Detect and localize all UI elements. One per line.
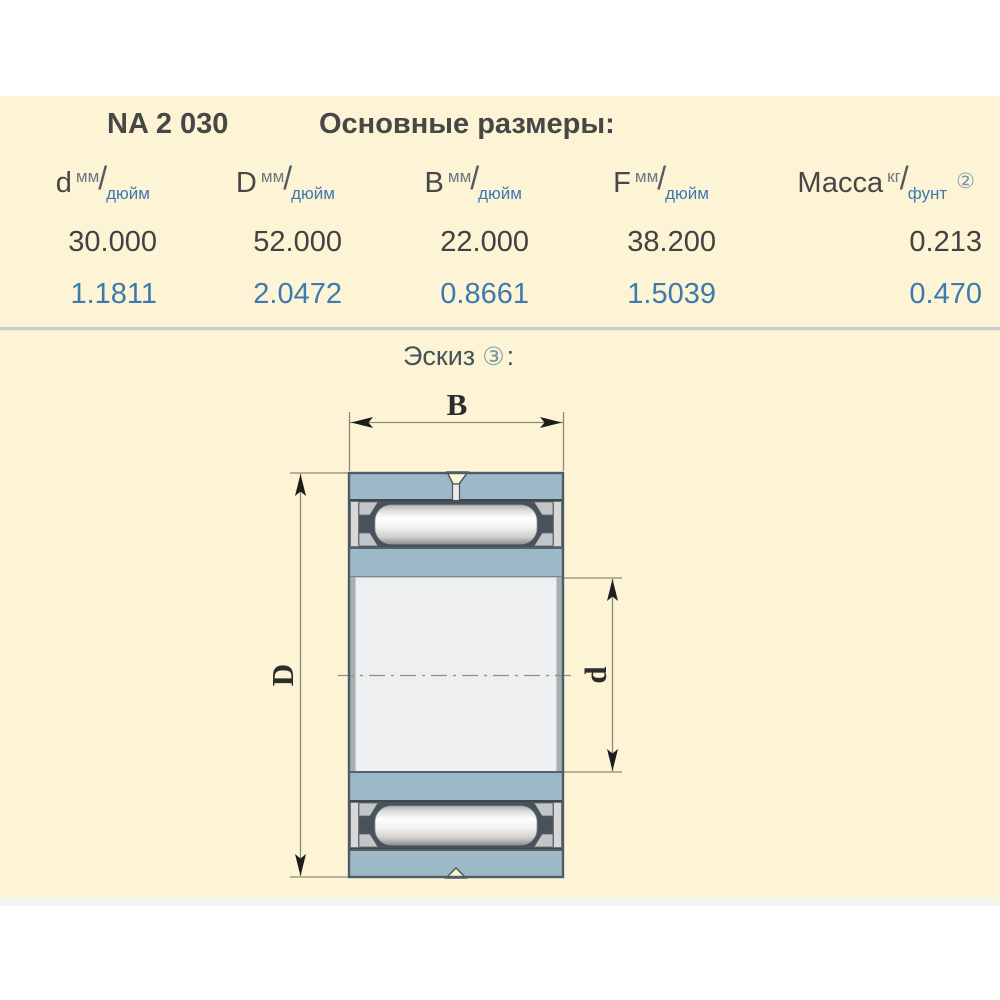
unit-mm: мм bbox=[261, 167, 284, 186]
column-header-F: Fмм/дюйм bbox=[532, 163, 719, 219]
unit-pound: фунт bbox=[908, 184, 947, 203]
roller-row-top bbox=[349, 500, 563, 548]
unit-kg: кг bbox=[887, 167, 901, 186]
value-F-inch: 1.5039 bbox=[532, 278, 719, 311]
dimension-label-B: B bbox=[442, 388, 472, 422]
column-symbol: D bbox=[236, 167, 257, 199]
unit-mm: мм bbox=[76, 167, 99, 186]
bottom-strip bbox=[0, 898, 1000, 906]
inner-ring-top bbox=[349, 548, 563, 577]
value-B-mm: 22.000 bbox=[345, 226, 532, 259]
column-symbol: F bbox=[613, 167, 631, 199]
unit-mm: мм bbox=[448, 167, 471, 186]
inner-ring-bottom bbox=[349, 772, 563, 801]
bore bbox=[349, 577, 563, 772]
catalog-page: NA 2 030 Основные размеры: dмм/дюйм Dмм/… bbox=[0, 0, 1000, 1000]
bore-edge-right bbox=[557, 578, 563, 772]
column-header-B: Bмм/дюйм bbox=[345, 163, 532, 219]
value-d-inch: 1.1811 bbox=[0, 278, 160, 311]
table-header-row: dмм/дюйм Dмм/дюйм Bмм/дюйм Fмм/дюйм Масс… bbox=[0, 163, 985, 219]
value-B-inch: 0.8661 bbox=[345, 278, 532, 311]
value-D-mm: 52.000 bbox=[160, 226, 345, 259]
unit-inch: дюйм bbox=[106, 184, 150, 203]
dimension-label-d: d bbox=[576, 655, 616, 695]
value-mass-kg: 0.213 bbox=[719, 226, 985, 259]
bearing-cross-section-drawing bbox=[0, 385, 1000, 890]
part-number: NA 2 030 bbox=[107, 108, 228, 141]
section-title: Основные размеры: bbox=[319, 108, 615, 141]
table-row-inch: 1.1811 2.0472 0.8661 1.5039 0.470 bbox=[0, 278, 985, 311]
footnote-mark-2-icon: ② bbox=[956, 170, 975, 193]
sketch-label: Эскиз bbox=[403, 341, 475, 371]
dimension-label-D: D bbox=[263, 655, 303, 695]
column-symbol: d bbox=[56, 167, 72, 199]
footnote-mark-3-icon: ③ bbox=[482, 343, 504, 371]
column-header-mass: Массакг/фунт② bbox=[719, 163, 985, 219]
column-symbol: B bbox=[425, 167, 444, 199]
unit-inch: дюйм bbox=[478, 184, 522, 203]
bore-edge-left bbox=[350, 578, 356, 772]
value-mass-lb: 0.470 bbox=[719, 278, 985, 311]
column-header-d: dмм/дюйм bbox=[0, 163, 160, 219]
unit-inch: дюйм bbox=[665, 184, 709, 203]
value-D-inch: 2.0472 bbox=[160, 278, 345, 311]
lubrication-slot bbox=[453, 484, 460, 501]
table-row-mm: 30.000 52.000 22.000 38.200 0.213 bbox=[0, 226, 985, 259]
sketch-colon: : bbox=[507, 341, 515, 371]
unit-mm: мм bbox=[635, 167, 658, 186]
value-F-mm: 38.200 bbox=[532, 226, 719, 259]
column-symbol: Масса bbox=[797, 167, 883, 199]
roller-row-bottom bbox=[349, 801, 563, 849]
sketch-caption: Эскиз③: bbox=[403, 341, 514, 372]
bearing-body bbox=[338, 472, 575, 878]
column-header-D: Dмм/дюйм bbox=[160, 163, 345, 219]
section-divider bbox=[0, 327, 1000, 331]
unit-inch: дюйм bbox=[291, 184, 335, 203]
value-d-mm: 30.000 bbox=[0, 226, 160, 259]
